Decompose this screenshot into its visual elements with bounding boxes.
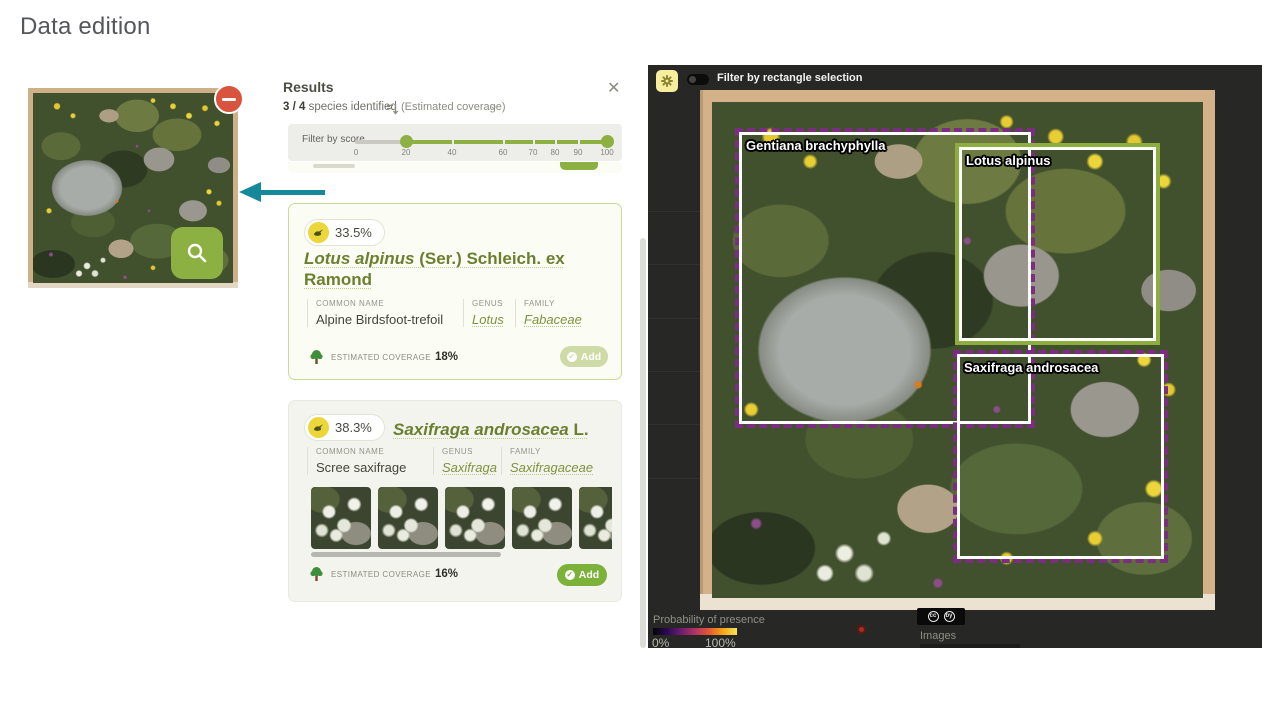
- tick-label: 70: [529, 148, 538, 157]
- gallery-scrollbar[interactable]: [311, 552, 501, 557]
- search-icon: [185, 241, 209, 265]
- divider: [648, 211, 702, 212]
- common-name-label: COMMON NAME: [316, 447, 427, 456]
- rectangle-filter-toggle[interactable]: [687, 74, 709, 85]
- score-filter: Filter by score 0 20 40 60 70 80 90 100: [288, 124, 622, 161]
- species-identified-summary: 3 / 4 species identified: [283, 101, 397, 113]
- genus-label: GENUS: [472, 299, 511, 308]
- coverage-label: ESTIMATED COVERAGE: [331, 353, 431, 362]
- magnify-button[interactable]: [171, 227, 223, 279]
- tick-label: 80: [551, 148, 560, 157]
- score-value: 33.5%: [335, 225, 372, 240]
- score-value: 38.3%: [335, 420, 372, 435]
- tick-label: 0: [354, 148, 358, 157]
- divider: [648, 318, 702, 319]
- coverage-row: ESTIMATED COVERAGE 18%: [309, 349, 458, 365]
- check-icon: ✓: [567, 352, 577, 362]
- score-bird-icon: [308, 222, 329, 243]
- common-name-value: Alpine Birdsfoot-trefoil: [316, 312, 452, 327]
- divider: [648, 264, 702, 265]
- add-species-button[interactable]: ✓ Add: [557, 564, 607, 586]
- family-value[interactable]: Fabaceae: [524, 312, 595, 327]
- species-card-lotus[interactable]: 33.5% Lotus alpinus (Ser.) Schleich. ex …: [288, 203, 622, 380]
- family-label: FAMILY: [524, 299, 595, 308]
- genus-label: GENUS: [442, 447, 495, 456]
- add-button-label: Add: [579, 569, 599, 581]
- sort-icon[interactable]: [386, 102, 398, 120]
- slider-handle-min[interactable]: [400, 135, 413, 148]
- score-badge: 33.5%: [304, 219, 385, 246]
- add-species-button[interactable]: ✓ Add: [560, 346, 608, 367]
- slider-track-active[interactable]: [406, 140, 607, 144]
- family-value[interactable]: Saxifragaceae: [510, 460, 601, 475]
- cc-icon: cc: [928, 611, 939, 622]
- bbox-label: Gentiana brachyphylla: [746, 138, 885, 153]
- family-label: FAMILY: [510, 447, 601, 456]
- images-section-label: Images: [920, 630, 956, 642]
- slider-tick-mark: [503, 140, 505, 144]
- settings-button[interactable]: [656, 70, 678, 92]
- page: Data edition Results ✕ 3 / 4 species ide…: [0, 0, 1280, 720]
- divider: [648, 424, 702, 425]
- probability-legend-title: Probability of presence: [653, 614, 765, 626]
- cc-license-badge: cc by: [917, 608, 965, 625]
- species-scientific-name[interactable]: Saxifraga androsacea L.: [393, 419, 589, 440]
- score-badge: 38.3%: [304, 414, 385, 441]
- bbox-lotus[interactable]: Lotus alpinus: [955, 143, 1160, 345]
- tick-label: 20: [402, 148, 411, 157]
- probability-min-label: 0%: [652, 636, 669, 648]
- toggle-knob: [689, 76, 696, 83]
- partial-card-add-button: [560, 162, 598, 170]
- coverage-label: ESTIMATED COVERAGE: [331, 570, 431, 579]
- genus-column: GENUS Lotus: [463, 299, 511, 327]
- slider-tick-mark: [452, 140, 454, 144]
- species-photo[interactable]: [311, 487, 371, 549]
- tick-label: 40: [448, 148, 457, 157]
- chevron-down-icon: ⌄: [489, 99, 498, 112]
- species-photo[interactable]: [512, 487, 572, 549]
- annotation-arrow-head: [239, 182, 261, 202]
- annotation-arrow-line: [260, 190, 325, 195]
- divider: [648, 371, 702, 372]
- images-section-partial: [920, 644, 1020, 648]
- minus-icon: [222, 98, 236, 101]
- tick-label: 100: [600, 148, 613, 157]
- bbox-label: Lotus alpinus: [966, 153, 1051, 168]
- divider: [648, 478, 702, 479]
- species-binomial: Lotus alpinus: [304, 249, 415, 268]
- species-binomial: Saxifraga androsacea: [393, 420, 569, 439]
- family-column: FAMILY Fabaceae: [515, 299, 595, 327]
- species-scientific-name[interactable]: Lotus alpinus (Ser.) Schleich. ex Ramond: [304, 248, 604, 290]
- common-name-value: Scree saxifrage: [316, 460, 427, 475]
- record-indicator-icon: [857, 625, 866, 634]
- probability-max-label: 100%: [705, 636, 736, 648]
- genus-value[interactable]: Saxifraga: [442, 460, 495, 475]
- add-button-label: Add: [581, 351, 601, 363]
- species-count: 3 / 4: [283, 101, 305, 113]
- cc-by-icon: by: [944, 611, 955, 622]
- panel-scrollbar[interactable]: [640, 238, 646, 648]
- rectangle-filter-toggle-label: Filter by rectangle selection: [717, 72, 863, 84]
- partial-card-text: [313, 164, 355, 168]
- probability-gradient-bar: [653, 628, 737, 635]
- slider-tick-mark: [533, 140, 535, 144]
- coverage-row: ESTIMATED COVERAGE 16%: [309, 566, 458, 582]
- species-author: L.: [569, 420, 589, 439]
- slider-tick-mark: [578, 140, 580, 144]
- page-title: Data edition: [20, 13, 151, 41]
- common-name-column: COMMON NAME Alpine Birdsfoot-trefoil: [307, 299, 452, 327]
- common-name-label: COMMON NAME: [316, 299, 452, 308]
- tree-icon: [309, 349, 324, 365]
- coverage-value: 18%: [435, 351, 458, 363]
- tick-label: 90: [574, 148, 583, 157]
- results-panel-title: Results: [283, 79, 334, 95]
- slider-track-inactive[interactable]: [355, 140, 406, 144]
- score-bird-icon: [308, 417, 329, 438]
- partial-species-card: [288, 162, 622, 173]
- tree-icon: [309, 566, 324, 582]
- genus-column: GENUS Saxifraga: [433, 447, 495, 475]
- check-icon: ✓: [565, 570, 575, 580]
- species-photo-gallery[interactable]: [311, 487, 612, 549]
- slider-tick-mark: [555, 140, 557, 144]
- remove-image-button[interactable]: [214, 84, 244, 114]
- slider-handle-max[interactable]: [601, 135, 614, 148]
- species-count-suffix: species identified: [309, 101, 397, 113]
- bbox-label: Saxifraga androsacea: [964, 360, 1098, 375]
- tick-label: 60: [499, 148, 508, 157]
- species-card-saxifraga[interactable]: 38.3% Saxifraga androsacea L. COMMON NAM…: [288, 400, 622, 602]
- species-photo[interactable]: [378, 487, 438, 549]
- common-name-column: COMMON NAME Scree saxifrage: [307, 447, 427, 475]
- species-photo[interactable]: [445, 487, 505, 549]
- species-photo[interactable]: [579, 487, 612, 549]
- bbox-saxifraga[interactable]: Saxifraga androsacea: [953, 350, 1168, 563]
- close-icon[interactable]: ✕: [607, 78, 620, 98]
- coverage-value: 16%: [435, 568, 458, 580]
- genus-value[interactable]: Lotus: [472, 312, 511, 327]
- image-viewer-panel: Filter by rectangle selection Gentiana b…: [648, 65, 1262, 648]
- family-column: FAMILY Saxifragaceae: [501, 447, 601, 475]
- gear-icon: [660, 74, 674, 88]
